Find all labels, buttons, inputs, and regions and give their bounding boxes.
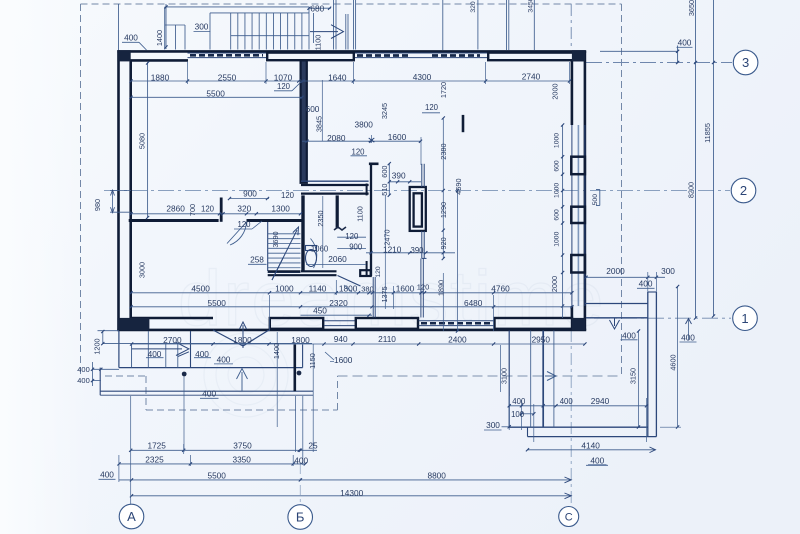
svg-text:2550: 2550 — [218, 73, 237, 83]
svg-text:1600: 1600 — [396, 284, 415, 294]
svg-text:2060: 2060 — [328, 254, 347, 264]
svg-text:390: 390 — [410, 246, 424, 255]
svg-text:5500: 5500 — [206, 88, 225, 98]
svg-text:1150: 1150 — [308, 353, 317, 369]
svg-text:120: 120 — [425, 103, 439, 112]
svg-text:400: 400 — [195, 349, 209, 359]
svg-text:120: 120 — [351, 147, 365, 156]
svg-text:920: 920 — [439, 237, 448, 249]
svg-text:500: 500 — [592, 194, 599, 206]
svg-text:1100: 1100 — [356, 206, 365, 222]
svg-text:400: 400 — [678, 38, 692, 48]
svg-text:400: 400 — [681, 333, 695, 343]
svg-text:4140: 4140 — [581, 441, 600, 451]
svg-text:320: 320 — [237, 204, 251, 214]
svg-text:1800: 1800 — [291, 335, 310, 345]
svg-text:900: 900 — [349, 242, 363, 251]
svg-text:120: 120 — [277, 82, 291, 91]
svg-text:1375: 1375 — [380, 286, 389, 302]
svg-text:4500: 4500 — [191, 284, 210, 294]
svg-text:3650: 3650 — [687, 0, 696, 16]
svg-text:2940: 2940 — [591, 396, 610, 406]
svg-text:900: 900 — [243, 189, 257, 199]
svg-text:1720: 1720 — [439, 82, 448, 98]
svg-text:1000: 1000 — [554, 133, 561, 148]
svg-text:300: 300 — [195, 22, 209, 32]
svg-text:120: 120 — [375, 266, 382, 278]
svg-text:980: 980 — [93, 199, 102, 211]
svg-text:1400: 1400 — [155, 30, 164, 46]
svg-text:1060: 1060 — [311, 244, 329, 253]
svg-text:1600: 1600 — [334, 355, 353, 365]
svg-text:1210: 1210 — [383, 245, 402, 255]
svg-text:1300: 1300 — [271, 204, 290, 214]
svg-text:2000: 2000 — [550, 276, 559, 292]
svg-text:3690: 3690 — [271, 231, 280, 247]
svg-text:400: 400 — [590, 456, 604, 466]
svg-text:400: 400 — [202, 389, 216, 399]
svg-text:1600: 1600 — [388, 132, 407, 142]
svg-text:3450: 3450 — [528, 0, 535, 13]
svg-text:120: 120 — [201, 205, 215, 214]
svg-text:4760: 4760 — [491, 284, 510, 294]
svg-text:2000: 2000 — [551, 83, 560, 99]
svg-text:1000: 1000 — [554, 183, 561, 198]
svg-text:3: 3 — [742, 55, 749, 70]
svg-text:100: 100 — [511, 410, 525, 419]
svg-text:8800: 8800 — [427, 471, 446, 481]
svg-text:2860: 2860 — [166, 204, 185, 214]
svg-text:600: 600 — [306, 104, 320, 114]
svg-text:5500: 5500 — [207, 298, 226, 308]
svg-text:120: 120 — [417, 283, 430, 292]
svg-text:400: 400 — [512, 397, 526, 406]
svg-text:1400: 1400 — [272, 343, 281, 359]
svg-text:400: 400 — [77, 365, 90, 374]
svg-text:3100: 3100 — [500, 368, 509, 384]
svg-text:3800: 3800 — [354, 119, 373, 129]
svg-text:C: C — [565, 511, 573, 523]
svg-text:1880: 1880 — [151, 73, 170, 83]
svg-text:2325: 2325 — [145, 454, 164, 464]
svg-text:2: 2 — [740, 183, 747, 198]
svg-text:4600: 4600 — [669, 354, 678, 370]
svg-text:3350: 3350 — [232, 454, 251, 464]
svg-text:680: 680 — [310, 3, 324, 13]
svg-text:3245: 3245 — [380, 103, 389, 119]
svg-text:400: 400 — [100, 469, 114, 479]
svg-text:3150: 3150 — [629, 368, 638, 384]
svg-text:400: 400 — [622, 331, 636, 341]
svg-text:700: 700 — [188, 204, 197, 216]
svg-text:2740: 2740 — [522, 72, 541, 82]
svg-text:1640: 1640 — [328, 73, 347, 83]
svg-text:600: 600 — [380, 166, 389, 178]
svg-text:390: 390 — [392, 171, 406, 181]
svg-text:940: 940 — [334, 334, 348, 344]
svg-text:400: 400 — [560, 397, 574, 406]
svg-text:400: 400 — [294, 456, 308, 466]
svg-text:400: 400 — [124, 33, 138, 43]
svg-text:2080: 2080 — [327, 133, 346, 143]
svg-text:2000: 2000 — [606, 266, 625, 276]
svg-text:6480: 6480 — [464, 298, 483, 308]
svg-text:1000: 1000 — [554, 231, 561, 246]
svg-text:1: 1 — [741, 311, 748, 326]
svg-text:1140: 1140 — [309, 284, 327, 294]
svg-text:2320: 2320 — [329, 298, 348, 308]
svg-text:300: 300 — [661, 266, 675, 276]
svg-text:120: 120 — [345, 232, 359, 241]
svg-text:3750: 3750 — [233, 441, 252, 451]
svg-text:А: А — [127, 509, 136, 524]
svg-text:400: 400 — [148, 349, 162, 359]
svg-text:1725: 1725 — [147, 441, 166, 451]
svg-text:5080: 5080 — [138, 133, 147, 149]
svg-text:4590: 4590 — [454, 178, 463, 194]
svg-text:2350: 2350 — [316, 210, 325, 226]
svg-text:400: 400 — [217, 354, 231, 364]
svg-text:2950: 2950 — [532, 335, 551, 345]
svg-text:400: 400 — [639, 279, 653, 289]
svg-text:258: 258 — [250, 255, 264, 265]
svg-text:450: 450 — [313, 306, 327, 316]
svg-text:2700: 2700 — [163, 335, 182, 345]
svg-text:1890: 1890 — [437, 280, 446, 296]
svg-text:3845: 3845 — [315, 116, 324, 132]
svg-text:4300: 4300 — [413, 72, 432, 82]
svg-text:25: 25 — [308, 441, 318, 451]
svg-text:120: 120 — [237, 220, 251, 229]
svg-text:11855: 11855 — [703, 123, 712, 143]
svg-text:2380: 2380 — [439, 143, 448, 159]
svg-text:600: 600 — [554, 209, 561, 221]
svg-text:1800: 1800 — [233, 335, 252, 345]
svg-text:510: 510 — [380, 184, 389, 196]
svg-text:2110: 2110 — [378, 334, 396, 344]
svg-text:120: 120 — [281, 191, 295, 200]
svg-text:8200: 8200 — [687, 182, 696, 198]
svg-text:320: 320 — [470, 1, 477, 13]
svg-text:1100: 1100 — [314, 35, 323, 51]
svg-text:5500: 5500 — [207, 471, 226, 481]
svg-text:Б: Б — [296, 510, 305, 525]
svg-text:1290: 1290 — [439, 202, 448, 218]
svg-text:300: 300 — [486, 420, 500, 430]
svg-text:400: 400 — [77, 376, 90, 385]
svg-text:1000: 1000 — [275, 284, 294, 294]
svg-text:14300: 14300 — [340, 488, 363, 498]
svg-text:1200: 1200 — [93, 338, 102, 354]
svg-text:380: 380 — [361, 285, 374, 294]
svg-text:1070: 1070 — [274, 73, 293, 83]
svg-text:2470: 2470 — [383, 229, 392, 245]
svg-text:3000: 3000 — [138, 262, 147, 278]
svg-text:2400: 2400 — [448, 335, 467, 345]
svg-text:600: 600 — [554, 160, 561, 172]
